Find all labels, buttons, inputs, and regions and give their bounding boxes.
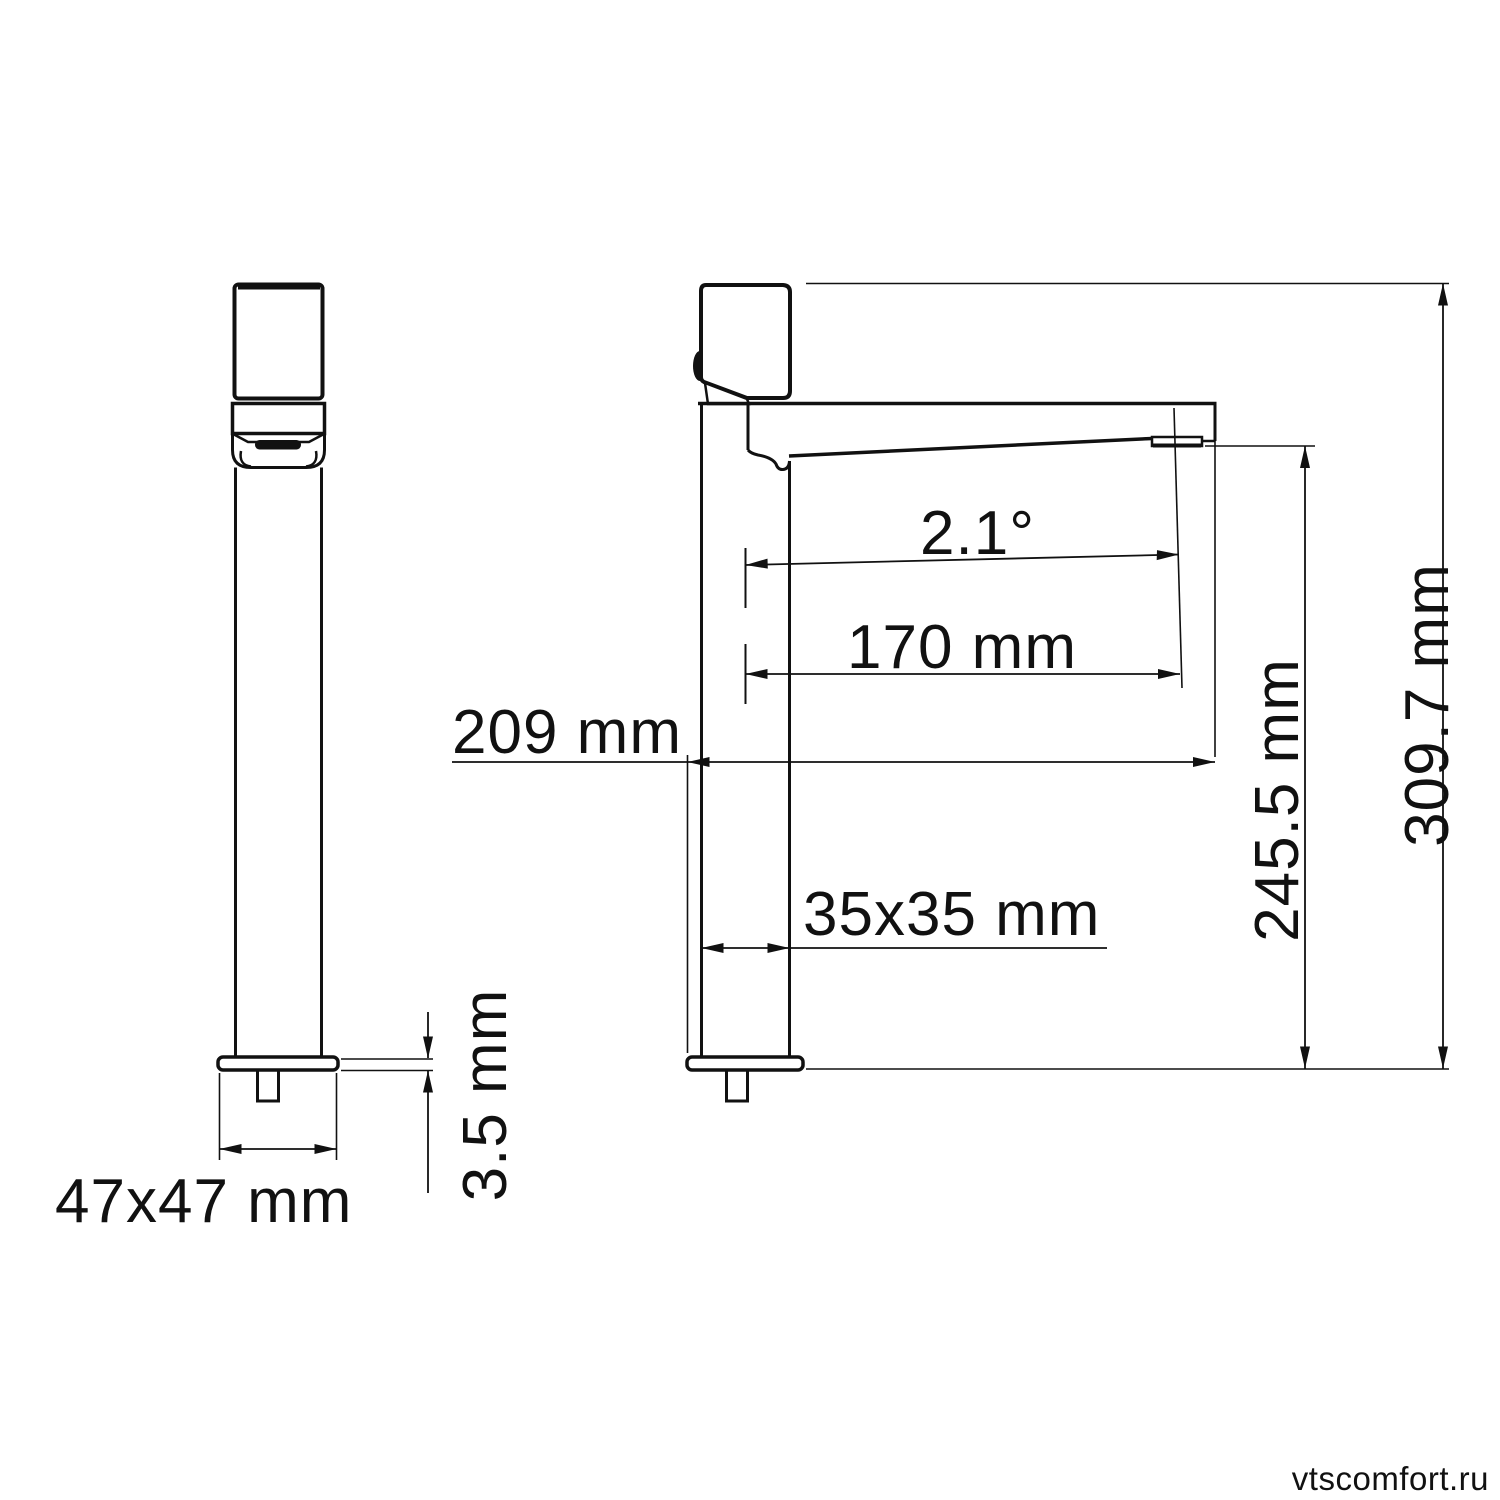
front-spout-face <box>233 434 325 468</box>
front-head-section <box>233 404 325 434</box>
arrowhead-up <box>423 1071 433 1093</box>
front-base-plate <box>218 1057 338 1070</box>
arrowhead-down <box>1300 1047 1310 1069</box>
label-total-reach: 209 mm <box>452 698 682 767</box>
side-base-plate <box>687 1057 803 1070</box>
arrowhead-left <box>688 757 710 767</box>
front-spout-cheek-right <box>306 451 316 467</box>
arrowhead-right <box>1193 757 1215 767</box>
faucet-dimension-drawing: 47x47 mm 3.5 mm 209 mm 35x35 mm 170 mm 2… <box>0 0 1500 1500</box>
label-aerator-height: 245.5 mm <box>1243 658 1312 942</box>
arrowhead-up <box>1438 284 1448 306</box>
label-total-height: 309.7 mm <box>1393 563 1462 847</box>
arrowhead-up <box>1300 446 1310 468</box>
label-base-size: 47x47 mm <box>55 1167 352 1236</box>
arrowhead-left <box>746 669 768 679</box>
watermark-text: vtscomfort.ru <box>1292 1460 1489 1497</box>
side-shank <box>727 1070 748 1101</box>
arrowhead-left <box>220 1144 242 1154</box>
arrowhead-left <box>746 559 768 569</box>
dimension-plate-thickness <box>341 1012 433 1193</box>
arrowhead-left <box>702 943 724 953</box>
arrowhead-right <box>1157 550 1179 560</box>
ext-line-aerator <box>1174 408 1182 688</box>
side-spout-fillet <box>748 450 790 470</box>
arrowhead-down <box>1438 1047 1448 1069</box>
front-view <box>218 285 338 1102</box>
label-plate-thickness: 3.5 mm <box>451 989 520 1202</box>
drawing-page: 47x47 mm 3.5 mm 209 mm 35x35 mm 170 mm 2… <box>0 0 1500 1500</box>
front-shank <box>258 1070 279 1101</box>
front-spout-cheek-left <box>241 451 251 467</box>
arrowhead-right <box>1158 669 1180 679</box>
label-body-section: 35x35 mm <box>803 880 1100 949</box>
label-spout-reach: 170 mm <box>847 613 1077 682</box>
front-handle <box>235 285 323 399</box>
side-view <box>687 285 1217 1101</box>
label-spout-angle: 2.1° <box>920 499 1035 568</box>
front-aerator-slot <box>255 440 301 450</box>
arrowhead-down <box>423 1037 433 1059</box>
side-handle <box>701 285 790 398</box>
side-spout-underside <box>789 439 1152 457</box>
arrowhead-right <box>315 1144 337 1154</box>
arrowhead-right <box>768 943 790 953</box>
